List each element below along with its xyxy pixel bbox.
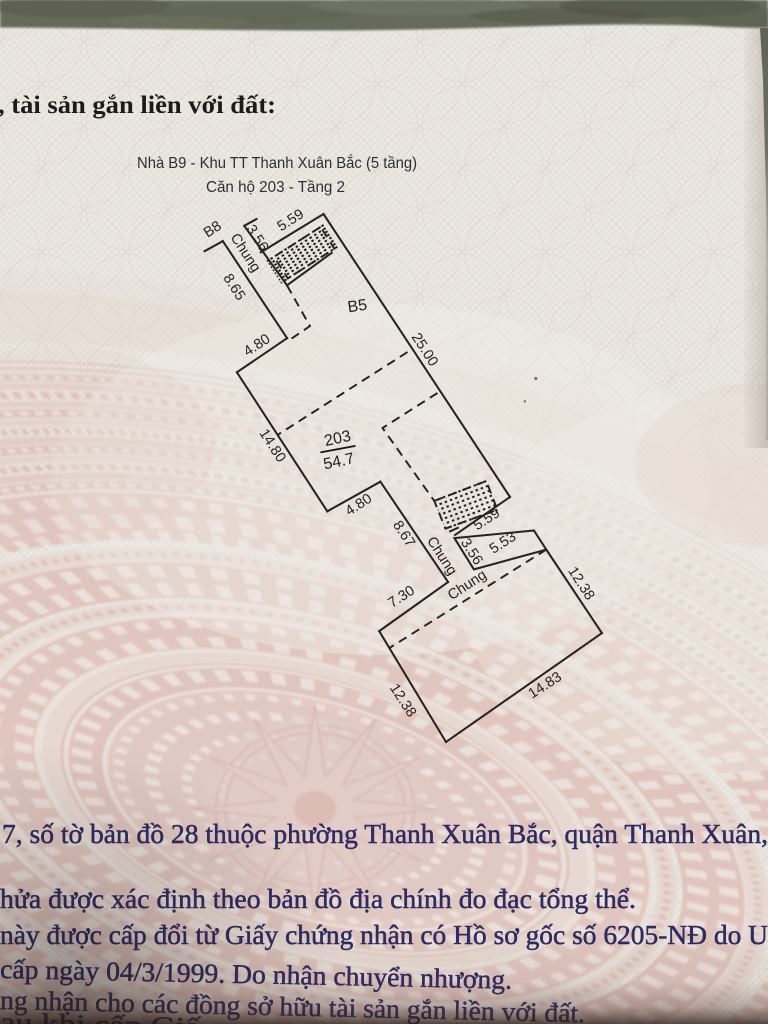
svg-text:Nhà B9 - Khu TT Thanh Xuân Bắc: Nhà B9 - Khu TT Thanh Xuân Bắc (5 tầng) xyxy=(137,153,417,172)
svg-text:, tài sản gắn liền với đất:: , tài sản gắn liền với đất: xyxy=(0,90,276,119)
svg-text:Căn hộ 203 - Tầng 2: Căn hộ 203 - Tầng 2 xyxy=(206,179,345,196)
svg-text:B5: B5 xyxy=(346,297,368,317)
